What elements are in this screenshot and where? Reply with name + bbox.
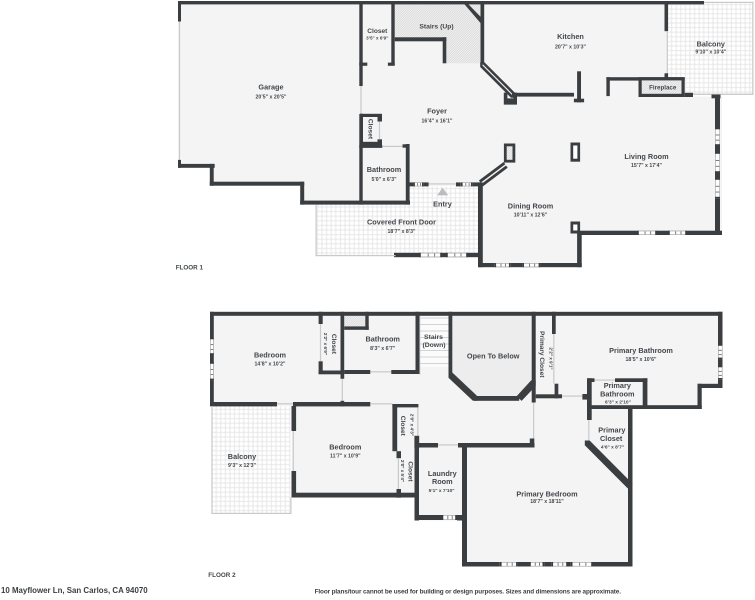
svg-text:3’5" x 6’9": 3’5" x 6’9": [366, 35, 388, 40]
svg-text:Primary Bedroom: Primary Bedroom: [516, 489, 578, 498]
svg-text:11’7" x 10’9": 11’7" x 10’9": [330, 454, 361, 460]
svg-text:Primary Closet: Primary Closet: [538, 331, 545, 378]
svg-text:10 Mayflower Ln, San Carlos, C: 10 Mayflower Ln, San Carlos, CA 94070: [1, 586, 148, 595]
svg-text:14’8" x 10’2": 14’8" x 10’2": [255, 361, 286, 367]
svg-text:Dining Room: Dining Room: [508, 202, 554, 211]
svg-text:Primary Bathroom: Primary Bathroom: [609, 346, 673, 355]
svg-text:Primary: Primary: [598, 425, 626, 434]
svg-text:Closet: Closet: [399, 416, 406, 437]
svg-text:2’0" x 5’4": 2’0" x 5’4": [400, 460, 405, 482]
svg-text:4’6" x 8’7": 4’6" x 8’7": [601, 444, 624, 450]
svg-text:Balcony: Balcony: [697, 40, 726, 49]
svg-text:Closet: Closet: [367, 119, 374, 140]
svg-text:Stairs (Up): Stairs (Up): [419, 24, 453, 31]
svg-text:Fireplace: Fireplace: [649, 84, 677, 91]
svg-text:Bedroom: Bedroom: [254, 351, 287, 360]
svg-text:Stairs: Stairs: [424, 334, 443, 341]
svg-text:Open To Below: Open To Below: [467, 351, 520, 360]
svg-text:Living Room: Living Room: [624, 152, 669, 161]
svg-text:18’7" x 8’3": 18’7" x 8’3": [388, 229, 417, 235]
svg-text:10’11" x 12’6": 10’11" x 12’6": [514, 212, 548, 218]
svg-text:Covered Front Door: Covered Front Door: [367, 218, 436, 227]
svg-text:5’0" x 6’3": 5’0" x 6’3": [371, 177, 397, 183]
svg-text:(Down): (Down): [422, 342, 445, 349]
svg-text:Closet: Closet: [330, 334, 337, 355]
svg-text:Foyer: Foyer: [427, 107, 447, 116]
svg-text:9’10" x 10’4": 9’10" x 10’4": [695, 50, 726, 56]
svg-text:Entry: Entry: [433, 200, 453, 209]
svg-text:16’4" x 16’1": 16’4" x 16’1": [422, 119, 453, 125]
svg-text:15’7" x 17’4": 15’7" x 17’4": [631, 163, 662, 169]
svg-text:18’5" x 10’6": 18’5" x 10’6": [626, 357, 657, 363]
svg-text:Closet: Closet: [367, 28, 388, 35]
svg-text:Garage: Garage: [258, 83, 283, 92]
svg-text:Bathroom: Bathroom: [365, 335, 400, 344]
svg-text:20’5" x 20’5": 20’5" x 20’5": [256, 95, 287, 101]
svg-text:2’2" x 6’9": 2’2" x 6’9": [323, 333, 328, 355]
svg-text:9’3" x 12’3": 9’3" x 12’3": [228, 463, 257, 469]
svg-text:8’3" x 6’7": 8’3" x 6’7": [370, 346, 396, 352]
svg-text:2’2" x 9’1": 2’2" x 9’1": [548, 347, 553, 369]
svg-text:Bathroom: Bathroom: [600, 389, 635, 398]
svg-text:Bathroom: Bathroom: [367, 165, 402, 174]
svg-text:FLOOR 2: FLOOR 2: [208, 572, 236, 579]
svg-text:Bedroom: Bedroom: [329, 443, 362, 452]
svg-text:Room: Room: [432, 477, 453, 486]
svg-text:2’0" x 4’3": 2’0" x 4’3": [409, 414, 414, 436]
svg-text:FLOOR 1: FLOOR 1: [176, 264, 204, 271]
svg-text:20’7" x 10’3": 20’7" x 10’3": [555, 45, 586, 51]
svg-text:Kitchen: Kitchen: [557, 32, 584, 41]
svg-text:Closet: Closet: [407, 461, 414, 482]
svg-text:6’3" x 2’10": 6’3" x 2’10": [605, 400, 631, 406]
svg-text:5’1" x 7’10": 5’1" x 7’10": [429, 488, 455, 494]
svg-text:18’7" x 18’11": 18’7" x 18’11": [530, 499, 564, 505]
svg-text:Floor plans/tour cannot be use: Floor plans/tour cannot be used for buil…: [315, 589, 622, 596]
svg-text:Balcony: Balcony: [228, 452, 257, 461]
svg-text:Closet: Closet: [600, 434, 623, 443]
